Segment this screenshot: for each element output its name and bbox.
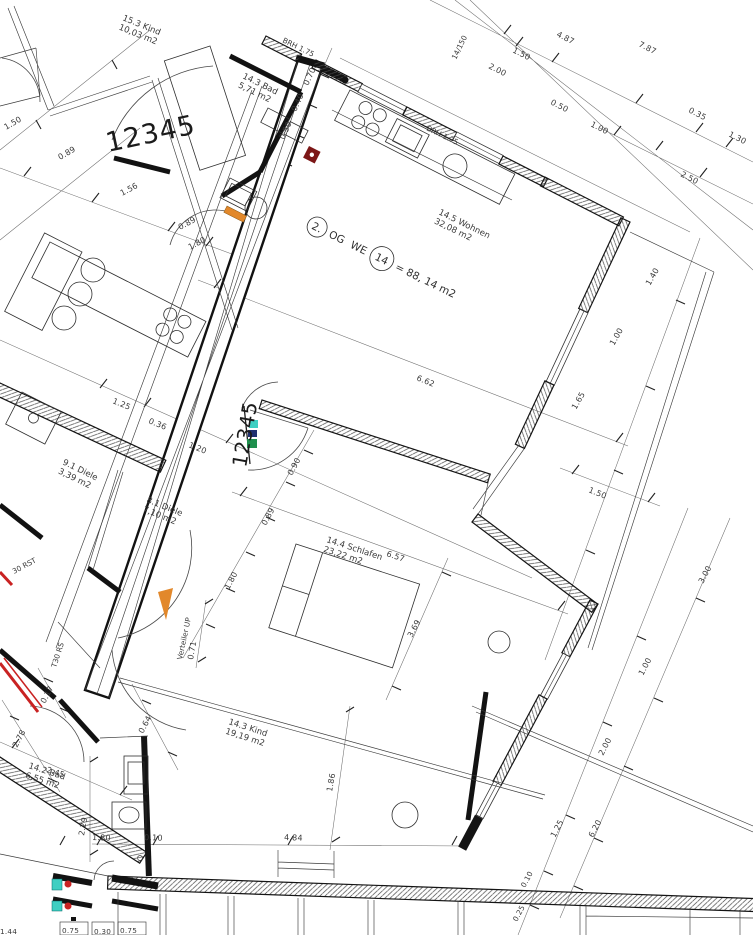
red-riser-dot-2	[65, 903, 72, 910]
dim-label: 0.75	[62, 926, 79, 935]
unit-floor: 2.	[310, 220, 324, 235]
dim-label: 2.78	[11, 728, 28, 749]
dim-label: 0.89	[260, 506, 277, 527]
floor-plan: 12345 12345 2. OG WE 14 = 88, 14 m2 15.3…	[0, 0, 753, 935]
dim-label: 1.65	[570, 390, 587, 411]
dim-label: 1.44	[0, 927, 17, 935]
teal-riser-2	[52, 901, 62, 911]
exterior-walls-upper	[262, 36, 630, 448]
dim-label: 1.00	[637, 656, 654, 677]
dim-label: 6.20	[587, 818, 604, 839]
red-riser-dot-1	[65, 881, 72, 888]
dim-label: 1.25	[111, 397, 132, 412]
stamp-a-text: 12345	[103, 110, 198, 159]
dim-label: 1.00	[589, 120, 610, 136]
red-line-3	[0, 572, 12, 585]
dim-label: 2.00	[487, 62, 508, 78]
dim-label: 6.62	[415, 374, 436, 389]
dim-label: 0.89	[57, 145, 78, 162]
dim-label: 0.25	[511, 904, 527, 923]
dim-label: 2.50	[679, 170, 700, 186]
dim-label: 3.00	[697, 564, 714, 585]
orange-marker	[158, 588, 173, 620]
dim-label: 3.69	[406, 618, 423, 639]
dim-label: 1.86	[325, 772, 337, 792]
unit-area: = 88, 14 m2	[393, 261, 457, 301]
dimension-labels: 1.50 0.89 1.56 0.89 1.80 1.50 2.00 4.87 …	[0, 30, 748, 935]
dim-label: 0.90	[286, 456, 303, 477]
dim-label: 1.00	[608, 326, 625, 347]
dim-label: 0.10	[519, 870, 535, 889]
dim-label: 0.36	[147, 417, 168, 432]
dim-label: 1.30	[727, 130, 748, 146]
unit-number: 14	[373, 251, 391, 268]
dim-label: 1.25	[549, 818, 566, 839]
dim-label: 6.57	[385, 549, 405, 563]
dim-label: 0.71	[186, 640, 198, 660]
dim-label: 1.80	[187, 235, 208, 252]
dim-label: 1.50	[3, 115, 24, 132]
dim-label: 1.80	[223, 570, 240, 591]
dim-label: 1.56	[119, 181, 140, 198]
dim-label: 7.87	[637, 40, 658, 56]
dim-label: 0.89	[177, 215, 198, 232]
dim-label: 0.10	[144, 833, 163, 843]
dim-label: 4.84	[284, 833, 303, 843]
stamp-b-text: 12345	[227, 400, 262, 469]
dim-label: 1.50	[511, 46, 532, 62]
dim-label: 1.40	[644, 266, 661, 287]
unit-og: OG	[327, 229, 347, 247]
dim-label: 0.50	[549, 98, 570, 114]
bed	[269, 544, 420, 668]
floor-plan-svg: 12345 12345 2. OG WE 14 = 88, 14 m2 15.3…	[0, 0, 753, 935]
t30-door-label: T30 RS	[49, 641, 66, 670]
unit-we: WE	[348, 239, 369, 257]
dim-label: 0.30	[94, 927, 111, 935]
stamp-a: 12345	[103, 110, 198, 172]
teal-riser-1	[52, 879, 62, 890]
dim-label: 4.87	[555, 30, 576, 46]
kitchen-counter-upper	[335, 90, 515, 204]
dim-label: 0.64	[137, 714, 154, 735]
red-line-1	[0, 663, 38, 712]
stair-label: 14/150	[450, 34, 469, 61]
dim-label: 1.50	[587, 486, 608, 501]
dim-label: 2.29	[77, 816, 89, 836]
orange-threshold	[224, 206, 247, 222]
stamp-a-bar	[114, 158, 170, 172]
dim-label: 1.80	[92, 833, 111, 843]
dim-label: 2.00	[597, 736, 614, 757]
dim-label: 0.75	[120, 926, 137, 935]
dim-label: 0.35	[687, 106, 708, 122]
rst-label: 30 RST	[11, 555, 38, 575]
annotations: BRH 1.75 BRH 1.75 14/150 Verteiler UP T3…	[11, 34, 469, 670]
